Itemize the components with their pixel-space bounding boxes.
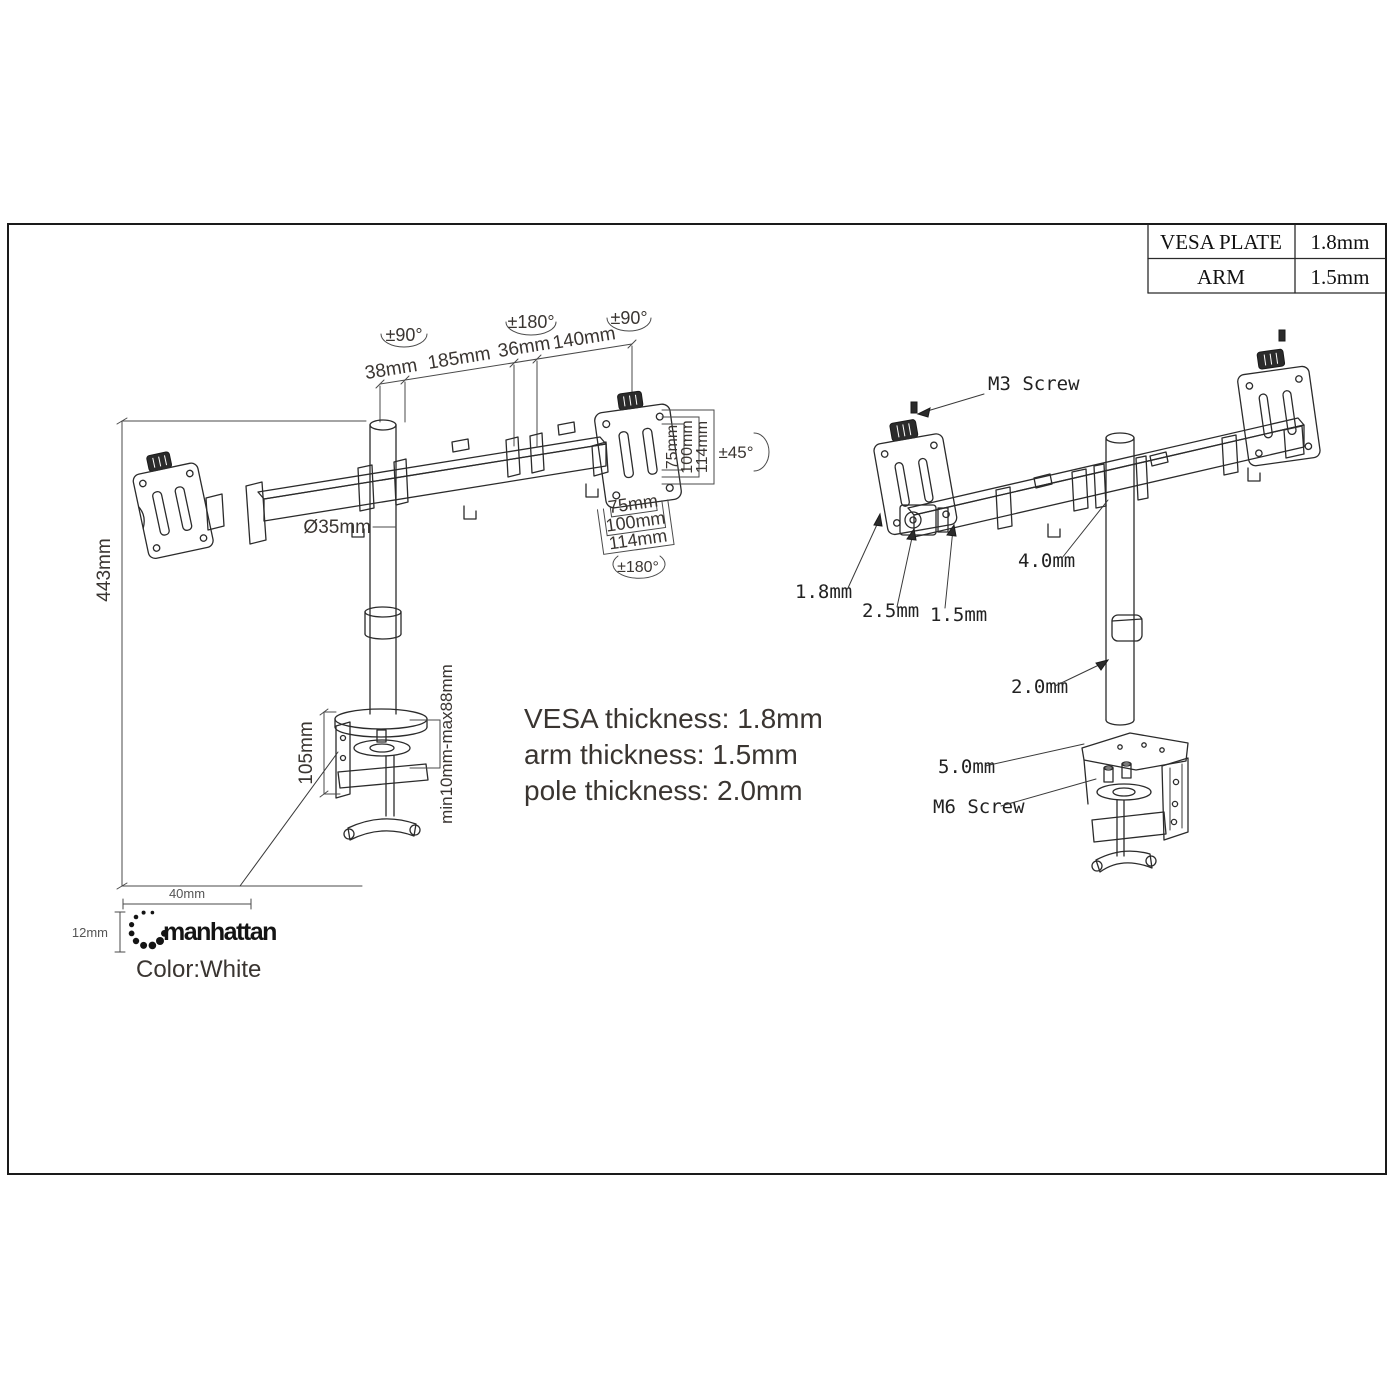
thickness-notes: VESA thickness: 1.8mm arm thickness: 1.5… — [524, 703, 823, 806]
branding-block: 40mm 12mm manhattan Color:White — [72, 886, 276, 983]
color-note: Color:White — [136, 956, 261, 983]
desk-range-label: min10mm-max88mm — [437, 664, 456, 824]
spec-row-label: ARM — [1197, 265, 1245, 289]
height-dim-label: 443mm — [94, 538, 115, 601]
m6-screw-label: M6 Screw — [933, 796, 1025, 818]
pole-diameter-label: Ø35mm — [303, 517, 371, 538]
desk-clamp — [335, 709, 428, 840]
arm-thickness-label: 1.5mm — [930, 604, 987, 626]
exploded-right-plate — [1234, 330, 1321, 467]
exploded-pole — [1094, 433, 1148, 725]
clamp-plate-thickness-label: 5.0mm — [938, 756, 995, 778]
pole-diameter: Ø35mm — [303, 517, 396, 538]
logo-width-label: 40mm — [169, 886, 205, 901]
left-vesa-plate — [129, 446, 215, 559]
left-plate-hinge — [206, 494, 224, 530]
desk-range-dimension: min10mm-max88mm — [410, 664, 456, 824]
vesa-vertical-dims: 75mm 100mm 114mm ±45° — [662, 410, 769, 484]
angle-right-swivel: ±90° — [610, 308, 647, 328]
angle-mid-swivel: ±180° — [507, 312, 554, 332]
angle-left-swivel: ±90° — [385, 325, 422, 345]
exploded-view-diagram: M3 Screw 1.8mm 2.5mm 1.5mm 4.0mm 2.0mm 5… — [795, 330, 1321, 872]
exploded-clamp — [1082, 733, 1188, 872]
logo-leader-line — [240, 752, 338, 886]
spec-row-value: 1.8mm — [1311, 230, 1370, 254]
drawing-frame — [8, 224, 1386, 1174]
pole — [365, 420, 401, 714]
note-pole-thickness: pole thickness: 2.0mm — [524, 775, 803, 806]
clamp-height-label: 105mm — [296, 721, 317, 784]
bracket-thickness-label: 2.5mm — [862, 600, 919, 622]
vesa-thickness-label: 1.8mm — [795, 581, 852, 603]
clamp-height-dimension: 105mm — [296, 709, 340, 797]
diagram-page: VESA PLATE 1.8mm ARM 1.5mm 443mm — [0, 0, 1400, 1400]
joint-thickness-label: 4.0mm — [1018, 550, 1075, 572]
rotation-annotation: ±180° — [613, 556, 665, 578]
note-vesa-thickness: VESA thickness: 1.8mm — [524, 703, 823, 734]
spec-table: VESA PLATE 1.8mm ARM 1.5mm — [1148, 225, 1385, 293]
logo-height-label: 12mm — [72, 925, 108, 940]
vesa-v114: 114mm — [694, 421, 711, 473]
angle-rotation: ±180° — [617, 559, 659, 576]
brand-name: manhattan — [163, 918, 276, 946]
dim-38mm: 38mm — [363, 355, 418, 384]
dim-185mm: 185mm — [426, 343, 492, 374]
exploded-callouts: M3 Screw 1.8mm 2.5mm 1.5mm 4.0mm 2.0mm 5… — [795, 373, 1108, 818]
angle-tilt: ±45° — [718, 443, 753, 462]
dim-140mm: 140mm — [551, 323, 617, 354]
note-arm-thickness: arm thickness: 1.5mm — [524, 739, 798, 770]
manhattan-logo-dots — [129, 911, 168, 950]
pole-thickness-label: 2.0mm — [1011, 676, 1068, 698]
spec-row-label: VESA PLATE — [1160, 230, 1282, 254]
vesa-horizontal-dims: 75mm 100mm 114mm — [596, 489, 674, 554]
spec-row-value: 1.5mm — [1311, 265, 1370, 289]
m3-screw-label: M3 Screw — [988, 373, 1080, 395]
arm — [246, 422, 608, 544]
